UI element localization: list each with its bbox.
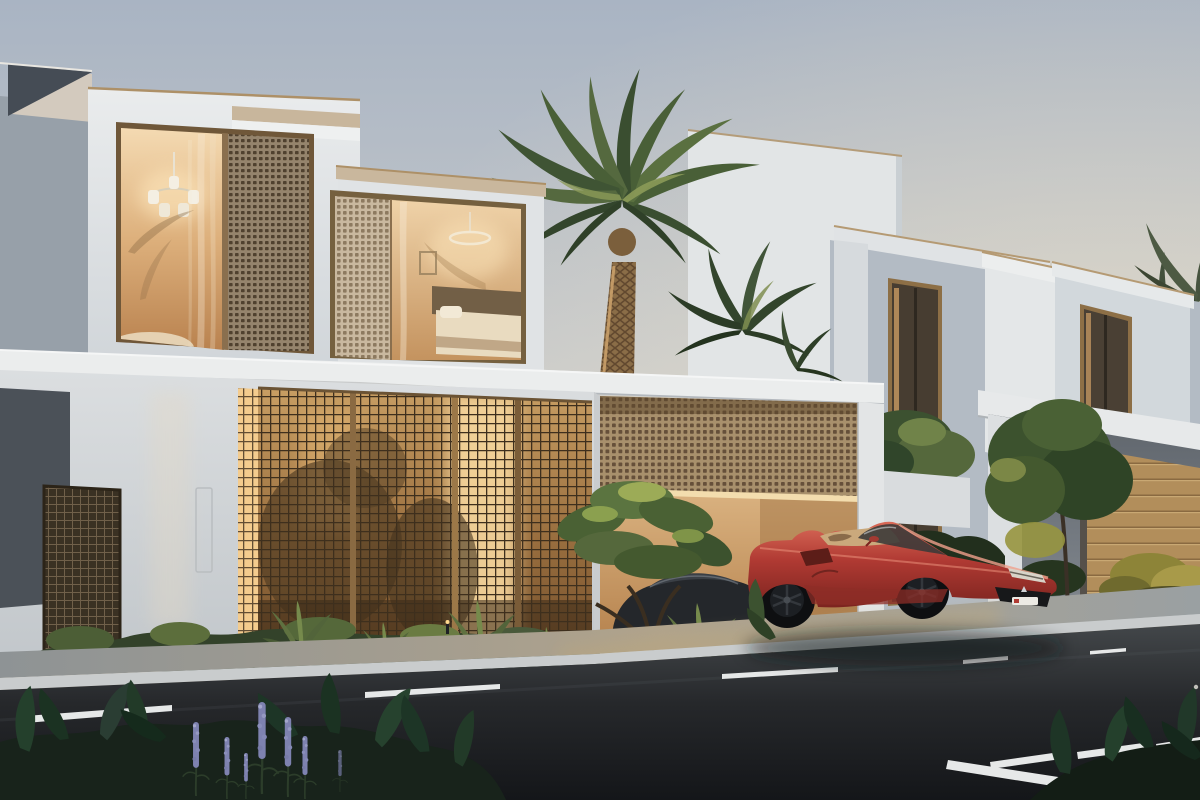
pillow xyxy=(440,306,462,318)
render-canvas: Photorealistic dusk rendering of two mod… xyxy=(0,0,1200,800)
wall-glow xyxy=(150,392,190,627)
path-light-glow xyxy=(446,620,450,624)
lattice-seam-3 xyxy=(515,398,521,650)
lattice-seam-2 xyxy=(452,396,458,652)
curtain-b xyxy=(400,202,407,360)
interior-glow-b xyxy=(428,220,508,280)
lattice-screen xyxy=(258,388,592,656)
lattice-seam xyxy=(350,392,356,654)
window-glass xyxy=(121,128,224,350)
mesh-screen xyxy=(228,134,309,351)
window-bedroom xyxy=(330,190,526,364)
license-plate-mark xyxy=(1014,599,1019,603)
window-divider xyxy=(222,133,228,350)
planter-box xyxy=(876,470,970,528)
villa-exterior-render: Photorealistic dusk rendering of two mod… xyxy=(0,0,1200,800)
side-mirror xyxy=(869,536,879,542)
window-living-room xyxy=(106,122,314,364)
mesh-screen-light xyxy=(335,196,390,360)
crown-core xyxy=(608,228,636,256)
lit-lattice-strip xyxy=(238,388,258,648)
left-side-wall xyxy=(0,96,92,362)
small-white-flower xyxy=(1194,685,1198,689)
car-shadow xyxy=(745,630,1065,666)
